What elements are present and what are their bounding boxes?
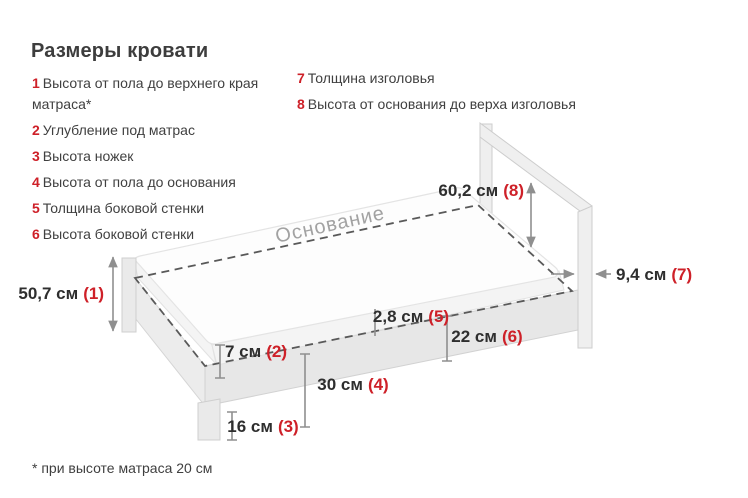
legend-text-3: Высота ножек xyxy=(43,148,134,164)
legend-item-3: 3Высота ножек xyxy=(32,146,284,167)
legend-item-5: 5Толщина боковой стенки xyxy=(32,198,284,219)
legend-num-7: 7 xyxy=(297,70,305,86)
legend-left-column: 1Высота от пола до верхнего края матраса… xyxy=(32,73,284,250)
legend-text-8: Высота от основания до верха изголовья xyxy=(308,96,576,112)
legend-item-2: 2Углубление под матрас xyxy=(32,120,284,141)
legend-num-1: 1 xyxy=(32,75,40,91)
legend-right-column: 7Толщина изголовья 8Высота от основания … xyxy=(297,68,627,120)
legend-num-3: 3 xyxy=(32,148,40,164)
legend-text-5: Толщина боковой стенки xyxy=(43,200,204,216)
legend-text-1: Высота от пола до верхнего края матраса* xyxy=(32,75,258,112)
legend-num-8: 8 xyxy=(297,96,305,112)
legend-item-1: 1Высота от пола до верхнего края матраса… xyxy=(32,73,284,115)
page-title: Размеры кровати xyxy=(31,40,208,63)
dim-label-2: 7 см(2) xyxy=(225,342,287,361)
headboard-near-post xyxy=(578,206,592,348)
front-left-leg xyxy=(198,399,220,440)
footnote: * при высоте матраса 20 см xyxy=(32,460,212,476)
legend-item-4: 4Высота от пола до основания xyxy=(32,172,284,193)
dim-label-3: 16 см(3) xyxy=(227,417,298,436)
legend-text-6: Высота боковой стенки xyxy=(43,226,194,242)
legend-item-7: 7Толщина изголовья xyxy=(297,68,627,89)
dim-label-1: 50,7 см(1) xyxy=(18,284,104,303)
legend-num-6: 6 xyxy=(32,226,40,242)
legend-num-4: 4 xyxy=(32,174,40,190)
headboard-top-bar xyxy=(480,123,592,220)
foot-post xyxy=(122,258,136,332)
dim-label-8: 60,2 см(8) xyxy=(438,181,524,200)
legend-text-2: Углубление под матрас xyxy=(43,122,195,138)
dim-label-5: 2,8 см(5) xyxy=(373,307,449,326)
legend-num-5: 5 xyxy=(32,200,40,216)
dim-label-6: 22 см(6) xyxy=(451,327,522,346)
dim-label-7: 9,4 см(7) xyxy=(616,265,692,284)
legend-item-6: 6Высота боковой стенки xyxy=(32,224,284,245)
dim-label-4: 30 см(4) xyxy=(317,375,388,394)
legend-text-4: Высота от пола до основания xyxy=(43,174,236,190)
legend-text-7: Толщина изголовья xyxy=(308,70,435,86)
legend-item-8: 8Высота от основания до верха изголовья xyxy=(297,94,627,115)
legend-num-2: 2 xyxy=(32,122,40,138)
